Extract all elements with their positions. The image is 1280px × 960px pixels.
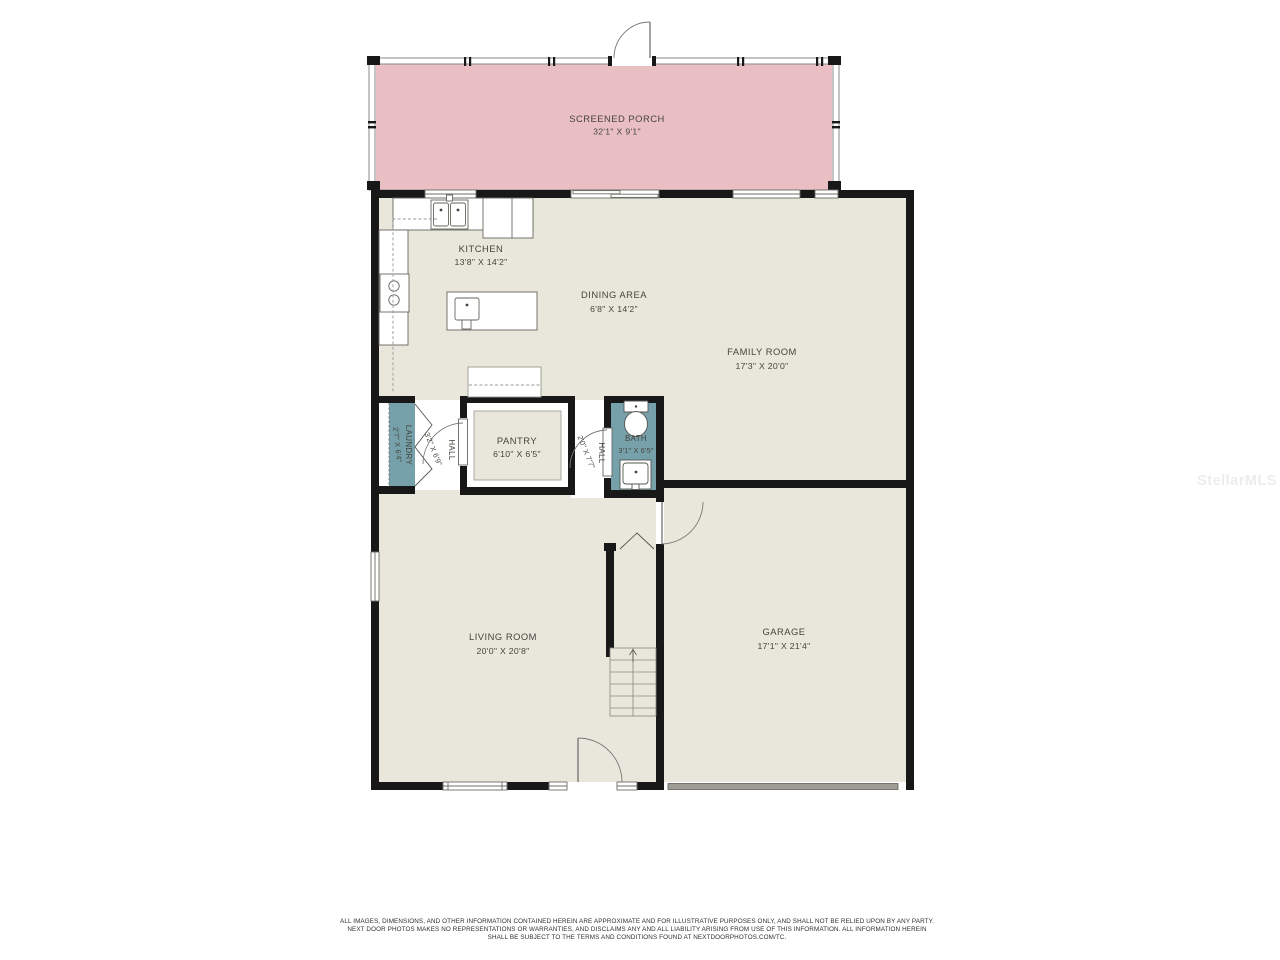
room-label-hall2: HALL — [597, 442, 606, 464]
kitchen-island-icon — [447, 292, 537, 330]
room-dims-screened-porch: 32'1" X 9'1" — [593, 127, 641, 137]
room-dims-living: 20'0" X 20'8" — [477, 646, 530, 656]
stairs-icon — [610, 648, 656, 716]
room-dims-kitchen: 13'8" X 14'2" — [455, 257, 508, 267]
wall-pantry-right — [568, 396, 575, 495]
wall-family-garage — [656, 480, 914, 488]
room-label-kitchen: KITCHEN — [459, 243, 504, 254]
room-dims-dining: 6'8" X 14'2" — [590, 304, 638, 314]
room-label-garage: GARAGE — [762, 626, 805, 637]
wall-stair-left — [606, 545, 614, 657]
garage-door-icon — [664, 782, 906, 790]
door-swing-icon — [614, 22, 650, 58]
kitchen-fridge — [483, 198, 533, 238]
kitchen-sink-icon — [431, 195, 468, 229]
stove-icon — [380, 274, 409, 312]
wall-laundry-top — [371, 396, 415, 403]
room-dims-garage: 17'1" X 21'4" — [758, 641, 811, 651]
porch-post — [828, 56, 841, 65]
screened-porch-room — [367, 22, 841, 190]
disclaimer-line-2: NEXT DOOR PHOTOS MAKES NO REPRESENTATION… — [347, 926, 927, 933]
porch-door-opening — [612, 56, 652, 66]
window-icon — [371, 552, 379, 601]
room-label-bath: BATH — [625, 434, 647, 443]
door-jamb — [652, 56, 656, 66]
window-icon — [617, 782, 637, 790]
toilet-icon — [624, 401, 648, 437]
room-label-laundry: LAUNDRY — [404, 425, 413, 466]
wall-right — [906, 190, 914, 790]
wall-bath-right — [656, 396, 664, 498]
room-label-hall1: HALL — [447, 439, 456, 461]
door-jamb — [608, 56, 612, 66]
room-dims-bath: 3'1" X 6'5" — [618, 446, 654, 455]
sliding-door-icon — [571, 190, 659, 198]
porch-post — [367, 181, 380, 190]
wall-laundry-bottom — [371, 486, 415, 494]
room-label-dining: DINING AREA — [581, 289, 647, 300]
room-label-pantry: PANTRY — [497, 435, 537, 446]
room-dims-family: 17'3" X 20'0" — [736, 361, 789, 371]
stellar-mls-watermark: StellarMLS — [1197, 473, 1277, 489]
room-label-screened-porch: SCREENED PORCH — [569, 113, 665, 124]
window-icon — [549, 782, 567, 790]
front-door-opening — [567, 782, 617, 790]
disclaimer: ALL IMAGES, DIMENSIONS, AND OTHER INFORM… — [340, 918, 934, 941]
bath-sink-icon — [620, 460, 651, 490]
window-icon — [733, 190, 800, 198]
floor-plan-page: SCREENED PORCH 32'1" X 9'1" KITCHEN 13'8… — [0, 0, 1280, 960]
room-label-living: LIVING ROOM — [469, 631, 537, 642]
porch-door — [608, 22, 656, 66]
garage-entry-opening — [656, 502, 664, 544]
room-dims-pantry: 6'10" X 6'5" — [493, 449, 541, 459]
window-icon — [443, 782, 507, 790]
wall-bath-bottom — [604, 490, 664, 498]
porch-post — [828, 181, 841, 190]
floor-plan-drawing: SCREENED PORCH 32'1" X 9'1" KITCHEN 13'8… — [0, 0, 1280, 960]
wall-pantry-bottom — [460, 487, 575, 495]
porch-post — [367, 56, 380, 65]
window-icon — [815, 190, 838, 198]
cabinet-above-pantry — [468, 367, 541, 397]
disclaimer-line-3: SHALL BE SUBJECT TO THE TERMS AND CONDIT… — [488, 934, 787, 941]
disclaimer-line-1: ALL IMAGES, DIMENSIONS, AND OTHER INFORM… — [340, 918, 934, 925]
room-label-family: FAMILY ROOM — [727, 346, 797, 357]
